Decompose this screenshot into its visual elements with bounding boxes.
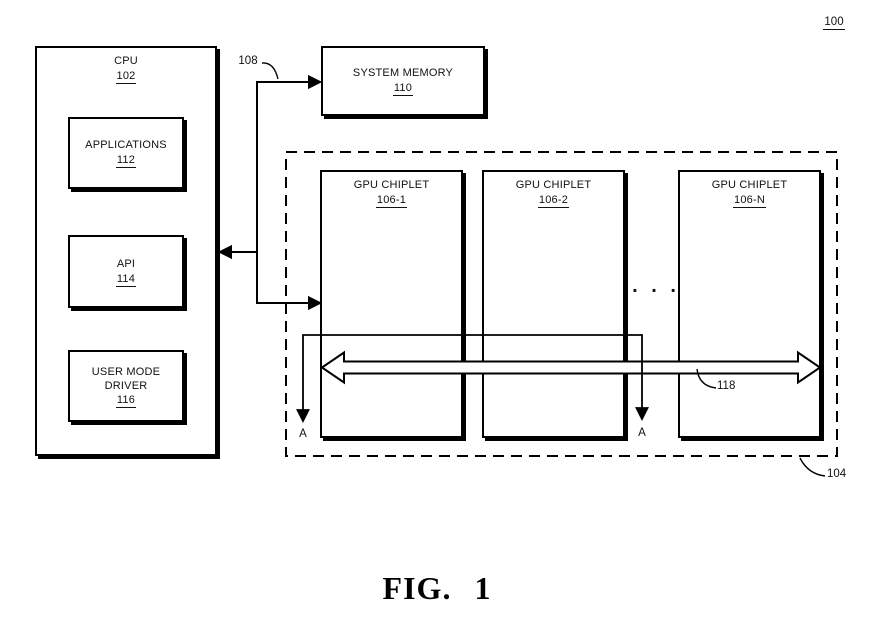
bus-trunk-and-memory-branch — [257, 82, 310, 304]
chiplet-ellipsis: . . . — [630, 275, 682, 298]
user-mode-driver-title-line1: USER MODE — [92, 365, 160, 379]
applications-title: APPLICATIONS — [85, 138, 167, 153]
leader-104 — [800, 458, 825, 476]
arrowhead-to-system-memory — [309, 77, 320, 88]
figure-ref-label: 100 — [818, 15, 850, 30]
chiplet-group-ref-label: 104 — [827, 467, 861, 481]
patent-figure-page: CPU 102 APPLICATIONS 112 API 114 USER MO… — [0, 0, 871, 638]
bus-ref-label: 108 — [233, 54, 263, 68]
system-memory-box: SYSTEM MEMORY 110 — [321, 46, 485, 116]
crosslink-ref-label: 118 — [717, 379, 749, 393]
gpu-chiplet-1-box: GPU CHIPLET 106-1 — [320, 170, 463, 438]
section-marker-a-right: A — [635, 426, 649, 440]
api-ref: 114 — [116, 272, 136, 287]
section-arrowhead-left — [298, 410, 309, 421]
leader-108 — [262, 63, 278, 79]
user-mode-driver-box: USER MODE DRIVER 116 — [68, 350, 184, 422]
applications-ref: 112 — [116, 153, 136, 168]
section-marker-a-left: A — [296, 427, 310, 441]
system-memory-title: SYSTEM MEMORY — [353, 66, 453, 81]
gpu-chiplet-2-box: GPU CHIPLET 106-2 — [482, 170, 625, 438]
user-mode-driver-ref: 116 — [116, 393, 136, 408]
section-arrowhead-right — [637, 408, 648, 419]
gpu-chiplet-2-ref: 106-2 — [538, 193, 569, 208]
gpu-chiplet-n-ref: 106-N — [733, 193, 766, 208]
gpu-chiplet-1-title: GPU CHIPLET — [354, 178, 430, 193]
system-memory-ref: 110 — [393, 81, 413, 96]
gpu-chiplet-n-box: GPU CHIPLET 106-N — [678, 170, 821, 438]
arrowhead-to-cpu — [220, 247, 231, 258]
gpu-chiplet-1-ref: 106-1 — [376, 193, 407, 208]
arrowhead-to-gpu-chiplet-1 — [309, 298, 320, 309]
cpu-title: CPU — [114, 54, 138, 69]
user-mode-driver-title-line2: DRIVER — [105, 379, 148, 393]
cpu-ref: 102 — [116, 69, 137, 84]
api-title: API — [117, 257, 135, 272]
figure-caption: FIG. 1 — [337, 570, 537, 607]
bus-108-lines — [220, 77, 320, 309]
applications-box: APPLICATIONS 112 — [68, 117, 184, 189]
gpu-chiplet-2-title: GPU CHIPLET — [516, 178, 592, 193]
cpu-box: CPU 102 APPLICATIONS 112 API 114 USER MO… — [35, 46, 217, 456]
gpu-chiplet-n-title: GPU CHIPLET — [712, 178, 788, 193]
api-box: API 114 — [68, 235, 184, 308]
